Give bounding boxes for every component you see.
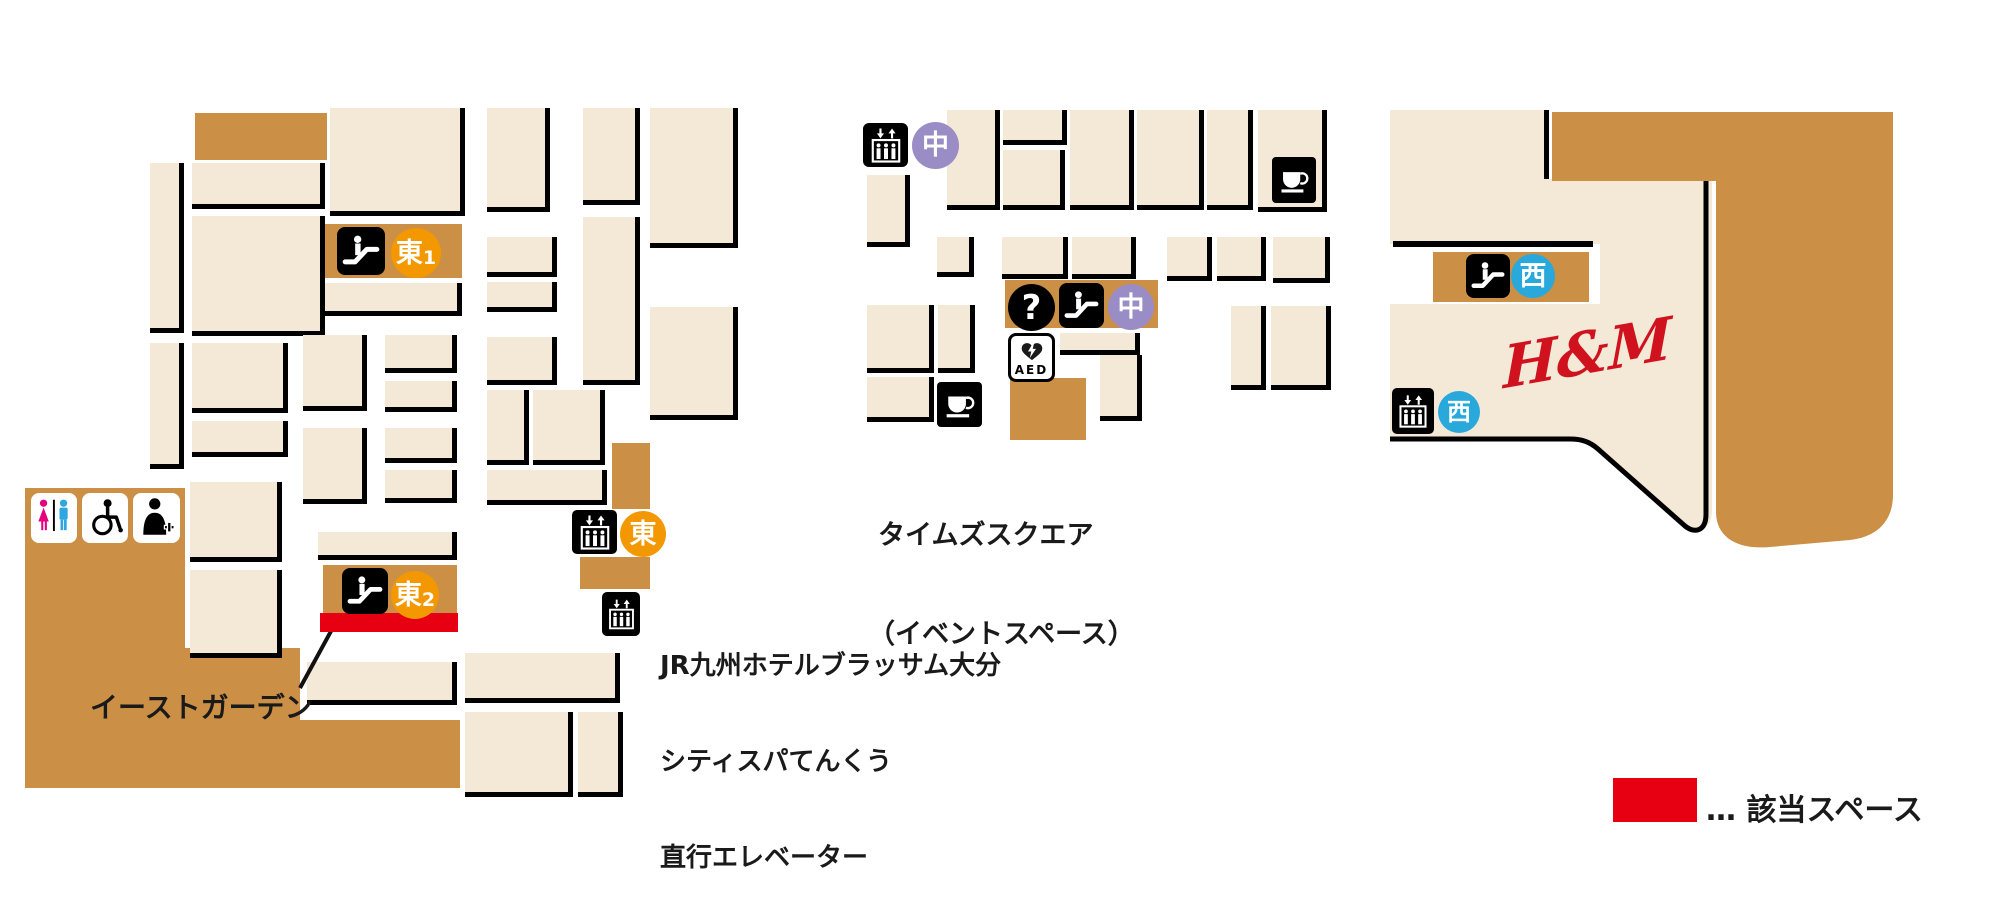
highlighted-space xyxy=(320,613,458,632)
badge-center-escalator: 中 xyxy=(1108,284,1154,330)
east-garden-label: イーストガーデン xyxy=(90,686,313,726)
legend-swatch xyxy=(1613,778,1697,822)
escalator-icon xyxy=(1059,283,1104,328)
floor-map: 東1 東2 東 中 ? 中 AED xyxy=(0,0,2000,900)
wall-line xyxy=(1393,241,1593,247)
badge-east2: 東2 xyxy=(391,571,439,619)
badge-west-elevator: 西 xyxy=(1438,391,1480,433)
elevator-icon xyxy=(1392,388,1434,434)
coffee-icon xyxy=(937,382,982,427)
restroom-icon xyxy=(31,493,77,543)
coffee-icon xyxy=(1272,157,1316,203)
badge-east1: 東1 xyxy=(391,228,441,278)
hotel-elevator-label: JR九州ホテルブラッサム大分 シティスパてんくう 直行エレベーター xyxy=(660,586,1001,900)
escalator-icon xyxy=(337,227,385,275)
elevator-icon xyxy=(572,510,617,554)
elevator-icon xyxy=(863,123,908,167)
elevator-icon xyxy=(602,592,640,636)
escalator-icon xyxy=(342,568,388,614)
legend-label: … 該当スペース xyxy=(1706,785,1923,829)
information-question-icon: ? xyxy=(1008,284,1055,331)
badge-center-elevator: 中 xyxy=(912,122,959,169)
badge-west-escalator: 西 xyxy=(1511,254,1555,298)
nursing-room-icon xyxy=(133,493,180,543)
wheelchair-icon xyxy=(82,493,128,543)
escalator-icon xyxy=(1466,254,1510,298)
aed-icon: AED xyxy=(1008,333,1055,382)
badge-east-elevator: 東 xyxy=(620,511,666,557)
